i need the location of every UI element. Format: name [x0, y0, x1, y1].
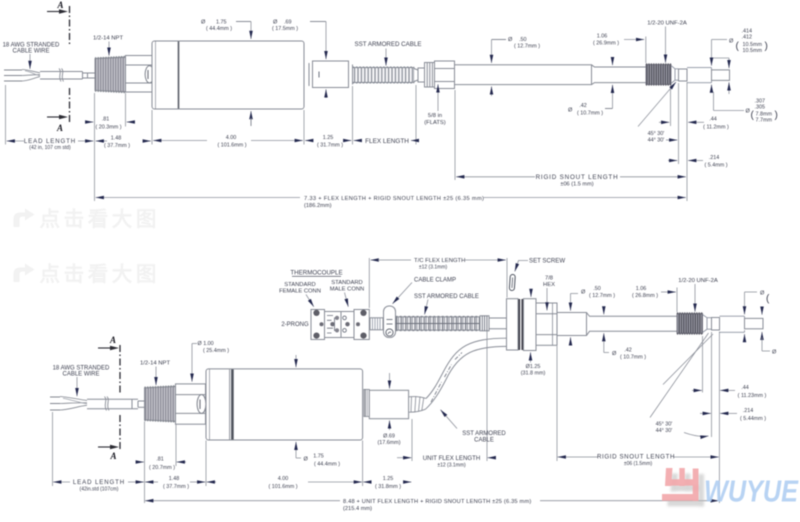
svg-text:Ø 1.00: Ø 1.00 — [198, 341, 214, 347]
svg-text:4.00: 4.00 — [278, 476, 289, 482]
svg-text:Ø1.25: Ø1.25 — [526, 364, 541, 370]
svg-text:SST ARMORED: SST ARMORED — [462, 431, 506, 437]
svg-text:CABLE: CABLE — [474, 438, 494, 444]
svg-text:A: A — [109, 451, 116, 461]
svg-text:Ø: Ø — [568, 108, 573, 114]
svg-text:1.06: 1.06 — [597, 34, 608, 40]
svg-text:SST ARMORED CABLE: SST ARMORED CABLE — [414, 294, 479, 300]
svg-text:1.06: 1.06 — [636, 286, 647, 292]
svg-text:.50: .50 — [593, 286, 601, 292]
svg-text:A: A — [56, 0, 63, 10]
svg-text:( 44.4mm ): ( 44.4mm ) — [314, 462, 340, 468]
svg-text:( 12.7mm ): ( 12.7mm ) — [514, 44, 540, 50]
svg-text:.44: .44 — [741, 385, 749, 391]
svg-text:FLEX LENGTH: FLEX LENGTH — [365, 138, 409, 145]
svg-text:4.00: 4.00 — [226, 135, 237, 141]
svg-text:SET SCREW: SET SCREW — [529, 258, 565, 265]
svg-text:HEX: HEX — [543, 282, 555, 288]
svg-text:点击看大图: 点击看大图 — [40, 207, 161, 231]
svg-text:): ) — [765, 41, 768, 52]
svg-text:点击看大图: 点击看大图 — [40, 262, 161, 286]
svg-text:±06 (1.5 mm): ±06 (1.5 mm) — [560, 181, 593, 187]
svg-text:18 AWG STRANDED: 18 AWG STRANDED — [53, 365, 110, 371]
svg-text:1/2-20 UNF-2A: 1/2-20 UNF-2A — [678, 278, 718, 284]
svg-text:( 26.9mm ): ( 26.9mm ) — [593, 41, 619, 47]
svg-text:±06 (1.5mm): ±06 (1.5mm) — [624, 461, 653, 467]
svg-text:1.75: 1.75 — [313, 454, 324, 460]
svg-text:SST ARMORED CABLE: SST ARMORED CABLE — [355, 41, 422, 48]
svg-text:Ø.69: Ø.69 — [383, 433, 395, 439]
svg-text:.50: .50 — [519, 37, 527, 43]
svg-text:±12 (3.1mm): ±12 (3.1mm) — [437, 462, 466, 468]
svg-text:LEAD LENGTH: LEAD LENGTH — [73, 479, 125, 486]
svg-text:Ø: Ø — [729, 39, 734, 45]
svg-text:(215.4 mm): (215.4 mm) — [343, 506, 372, 512]
svg-text:1/2-14 NPT: 1/2-14 NPT — [93, 36, 124, 42]
svg-text:Ø: Ø — [760, 291, 765, 297]
svg-text:A: A — [56, 123, 63, 133]
svg-text:Ø: Ø — [201, 20, 206, 26]
svg-text:( 12.7mm ): ( 12.7mm ) — [589, 293, 615, 299]
svg-text:Ø: Ø — [273, 20, 278, 26]
svg-text:.305: .305 — [755, 105, 766, 111]
svg-text:.42: .42 — [624, 348, 632, 354]
svg-text:(186.2mm): (186.2mm) — [304, 203, 332, 209]
svg-text:7/8: 7/8 — [545, 276, 553, 282]
svg-text:44° 30': 44° 30' — [648, 138, 665, 144]
svg-text:1.75: 1.75 — [216, 20, 227, 26]
svg-text:( 31.7mm ): ( 31.7mm ) — [317, 143, 343, 149]
svg-text:FEMALE CONN: FEMALE CONN — [279, 288, 321, 294]
svg-text:( 20.7mm ): ( 20.7mm ) — [149, 465, 175, 471]
svg-text:( 11.23mm ): ( 11.23mm ) — [738, 393, 767, 399]
svg-text:WUYUE: WUYUE — [704, 474, 799, 509]
svg-text:1/2-20 UNF-2A: 1/2-20 UNF-2A — [647, 21, 687, 27]
svg-text:.214: .214 — [743, 408, 754, 414]
svg-text:Ø: Ø — [772, 350, 777, 356]
svg-text:.69: .69 — [284, 20, 292, 26]
svg-text:( 5.44mm ): ( 5.44mm ) — [740, 416, 766, 422]
svg-text:( 101.6mm ): ( 101.6mm ) — [268, 484, 297, 490]
svg-text:.81: .81 — [102, 116, 110, 122]
svg-text:( 17.5mm ): ( 17.5mm ) — [272, 26, 298, 32]
svg-text:Ø: Ø — [581, 290, 586, 296]
svg-text:LEAD LENGTH: LEAD LENGTH — [24, 138, 76, 145]
svg-text:.42: .42 — [579, 103, 587, 109]
svg-text:44° 30': 44° 30' — [656, 428, 673, 434]
svg-text:(42 in, 107 cm std): (42 in, 107 cm std) — [29, 145, 71, 151]
svg-text:2-PRONG: 2-PRONG — [281, 322, 309, 328]
svg-text:7.7mm: 7.7mm — [756, 118, 773, 124]
svg-text:THERMOCOUPLE: THERMOCOUPLE — [290, 270, 342, 277]
svg-text:( 101.6mm ): ( 101.6mm ) — [217, 143, 246, 149]
svg-text:MALE CONN: MALE CONN — [330, 286, 364, 292]
svg-text:( 31.8mm ): ( 31.8mm ) — [375, 484, 401, 490]
svg-text:(42in.std (107cm): (42in.std (107cm) — [80, 486, 119, 492]
svg-text:.214: .214 — [709, 155, 720, 161]
svg-text:( 25.4mm ): ( 25.4mm ) — [203, 348, 229, 354]
svg-text:(31.8 mm): (31.8 mm) — [521, 371, 546, 377]
svg-text:5/8 in: 5/8 in — [428, 113, 442, 119]
svg-text:( 10.7mm ): ( 10.7mm ) — [577, 111, 603, 117]
svg-text:8.48 + UNIT FLEX LENGTH + RIGI: 8.48 + UNIT FLEX LENGTH + RIGID SNOUT LE… — [343, 499, 531, 505]
svg-text:CABLE CLAMP: CABLE CLAMP — [414, 278, 456, 284]
svg-text:STANDARD: STANDARD — [284, 282, 315, 288]
svg-text:1.25: 1.25 — [323, 135, 334, 141]
svg-text:( 26.8mm ): ( 26.8mm ) — [632, 293, 658, 299]
svg-text:( 5.4mm ): ( 5.4mm ) — [704, 163, 727, 169]
svg-text:RIGID SNOUT LENGTH: RIGID SNOUT LENGTH — [536, 174, 619, 181]
svg-text:1.25: 1.25 — [383, 476, 394, 482]
svg-text:Ø: Ø — [508, 37, 513, 43]
svg-text:.412: .412 — [742, 35, 753, 41]
svg-text:±12 (3.1mm): ±12 (3.1mm) — [419, 265, 448, 271]
svg-text:.44: .44 — [709, 117, 717, 123]
svg-text:CABLE WIRE: CABLE WIRE — [62, 371, 99, 377]
svg-text:( 11.2mm ): ( 11.2mm ) — [703, 124, 729, 130]
svg-text:1.48: 1.48 — [169, 476, 180, 482]
svg-text:(17.6mm): (17.6mm) — [377, 440, 400, 446]
svg-text:Ø: Ø — [304, 457, 309, 463]
svg-text:( 37.7mm ): ( 37.7mm ) — [104, 143, 130, 149]
svg-text:45° 30': 45° 30' — [656, 422, 673, 428]
svg-text:( 20.3mm ): ( 20.3mm ) — [95, 125, 121, 131]
svg-text:STANDARD: STANDARD — [331, 280, 362, 286]
svg-text:CABLE WIRE: CABLE WIRE — [12, 49, 49, 55]
svg-text:( 37.7mm ): ( 37.7mm ) — [163, 484, 189, 490]
svg-text:RIGID SNOUT LENGTH: RIGID SNOUT LENGTH — [597, 453, 675, 460]
svg-text:A: A — [109, 335, 116, 345]
svg-text:1/2-14 NPT: 1/2-14 NPT — [140, 361, 171, 367]
svg-text:Ø: Ø — [612, 351, 617, 357]
svg-text:): ) — [775, 110, 778, 121]
svg-text:10.5mm: 10.5mm — [743, 48, 763, 54]
svg-text:(FLATS): (FLATS) — [424, 120, 446, 126]
svg-text:1.48: 1.48 — [111, 135, 122, 141]
svg-text:( 44.4mm ): ( 44.4mm ) — [206, 26, 232, 32]
svg-text:UNIT FLEX LENGTH: UNIT FLEX LENGTH — [423, 455, 480, 462]
svg-text:T/C FLEX LENGTH: T/C FLEX LENGTH — [414, 258, 465, 264]
svg-text:45° 30': 45° 30' — [648, 131, 665, 137]
svg-text:( 10.7mm ): ( 10.7mm ) — [620, 355, 646, 361]
svg-text:7.33 + FLEX LENGTH + RIGID SNO: 7.33 + FLEX LENGTH + RIGID SNOUT LENGTH … — [304, 196, 484, 202]
svg-text:.81: .81 — [156, 457, 164, 463]
